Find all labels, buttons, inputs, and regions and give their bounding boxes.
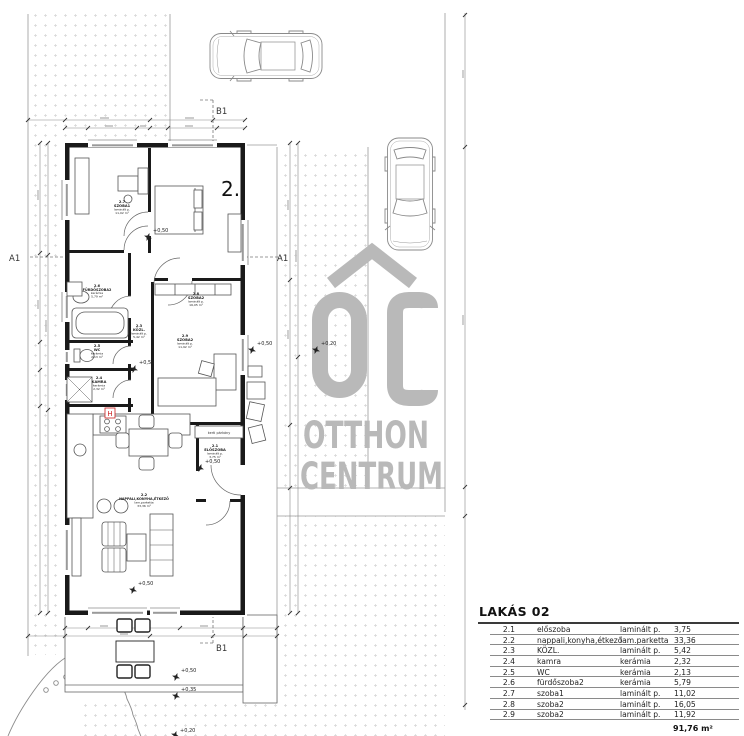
table-row: 2.9 szoba2 laminált p. 11,92 [478,710,739,721]
level-020-garden: +0,20 [180,728,195,734]
table-row: 2.2 nappali,konyha,étkező lam.parketta 3… [478,635,739,646]
level-050-terrace: +0,50 [181,668,196,674]
row-material: laminált p. [620,700,673,709]
row-material: laminált p. [620,646,673,655]
row-num: 2.9 [478,710,528,719]
area-table: LAKÁS 02 2.1 előszoba laminált p. 3,75 2… [478,604,739,734]
table-row: 2.7 szoba1 laminált p. 11,02 [478,688,739,699]
area-table-title: LAKÁS 02 [479,604,739,619]
row-area: 11,92 [673,710,739,719]
level-050-entry: +0,50 [205,459,220,465]
level-050-living: +0,50 [138,581,153,587]
row-area: 33,36 [673,636,739,645]
row-num: 2.1 [478,625,528,634]
room-2-9-area: 11,92 m² [178,345,192,349]
row-area: 11,02 [673,689,739,698]
level-050-east: +0,50 [257,341,272,347]
oc-letter-c-icon [395,300,430,398]
row-material: laminált p. [620,710,673,719]
row-area: 16,05 [673,700,739,709]
room-2-4-area: 2,32 m² [93,387,106,391]
row-area: 5,42 [673,646,739,655]
car-right-icon [385,138,435,250]
row-num: 2.6 [478,678,528,687]
table-row: 2.5 WC kerámia 2,13 [478,667,739,678]
room-2-6-area: 5,79 m² [91,294,104,298]
table-row: 2.4 kamra kerámia 2,32 [478,656,739,667]
row-material: laminált p. [620,689,673,698]
level-035-terrace: +0,35 [181,687,196,693]
watermark-word-otthon: OTTHON [303,414,429,457]
floorplan-sheet: OTTHON CENTRUM B1 B1 A1 A1 [0,0,744,736]
row-area: 3,75 [673,625,739,634]
row-num: 2.4 [478,657,528,666]
row-material: kerámia [620,657,673,666]
row-material: kerámia [620,668,673,677]
table-row: 2.1 előszoba laminált p. 3,75 [478,624,739,635]
section-a1-left-label: A1 [9,254,20,264]
level-050-hall: +0,50 [139,360,154,366]
row-material: lam.parketta [620,636,673,645]
watermark-word-centrum: CENTRUM [300,455,443,498]
room-2-8-area: 16,05 m² [189,303,203,307]
row-num: 2.8 [478,700,528,709]
row-name: szoba2 [528,710,620,719]
row-name: fürdőszoba2 [528,678,620,687]
table-row: 2.6 fürdőszoba2 kerámia 5,79 [478,677,739,688]
table-row: 2.3 KÖZL. laminált p. 5,42 [478,645,739,656]
total-area-value: 91,76 m² [673,724,739,733]
row-material: kerámia [620,678,673,687]
level-050-rooms: +0,50 [153,228,168,234]
row-name: nappali,konyha,étkező [528,636,620,645]
room-2-5-area: 2,13 m² [91,355,104,359]
row-name: kamra [528,657,620,666]
section-a1-right-label: A1 [277,254,288,264]
terrace-furniture [116,619,154,678]
row-name: szoba1 [528,689,620,698]
area-table-total-row: 91,76 m² [478,722,739,734]
kerti-parkany-note: kerti párkány [208,431,230,435]
area-table-body: 2.1 előszoba laminált p. 3,75 2.2 nappal… [478,622,739,720]
level-020-east: +0,20 [321,341,336,347]
row-name: szoba2 [528,700,620,709]
row-material: laminált p. [620,625,673,634]
row-num: 2.3 [478,646,528,655]
room-2-2-area: 33,36 m² [137,504,151,508]
section-b1-bottom-label: B1 [216,644,227,654]
row-num: 2.7 [478,689,528,698]
room-2-7-area: 11,02 m² [115,211,129,215]
row-name: WC [528,668,620,677]
unit-number-label: 2. [221,177,240,201]
row-num: 2.5 [478,668,528,677]
row-area: 2,13 [673,668,739,677]
room-2-3-area: 5,42 m² [133,335,146,339]
row-area: 5,79 [673,678,739,687]
row-num: 2.2 [478,636,528,645]
row-name: előszoba [528,625,620,634]
fridge-marker-label: H [107,410,112,418]
row-name: KÖZL. [528,646,620,655]
table-row: 2.8 szoba2 laminált p. 16,05 [478,699,739,710]
fridge-marker: H [105,408,115,418]
car-top-icon [210,31,322,81]
section-b1-top-label: B1 [216,107,227,117]
row-area: 2,32 [673,657,739,666]
